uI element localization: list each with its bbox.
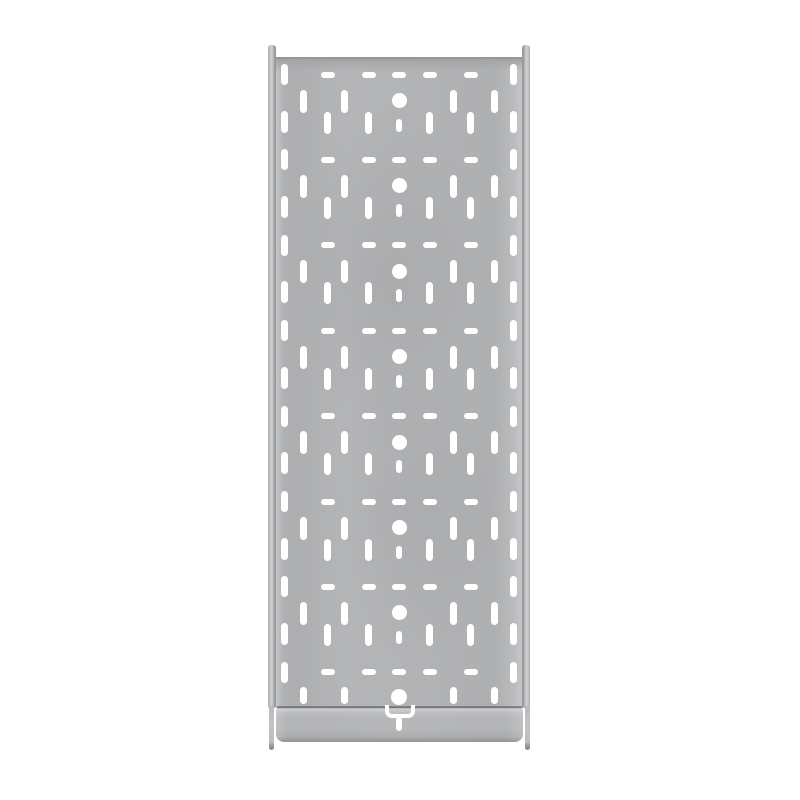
coupler-bracket-cutout xyxy=(385,705,415,718)
product-photo-cable-tray xyxy=(0,0,800,800)
tray-right-side-rail-lower-tip xyxy=(525,706,530,750)
tray-left-side-rail-lower-tip xyxy=(269,706,274,750)
coupler-stem-slot xyxy=(396,717,402,731)
tray-web xyxy=(276,57,523,708)
tray-right-side-rail xyxy=(522,45,530,709)
tray-left-side-rail xyxy=(268,45,276,709)
